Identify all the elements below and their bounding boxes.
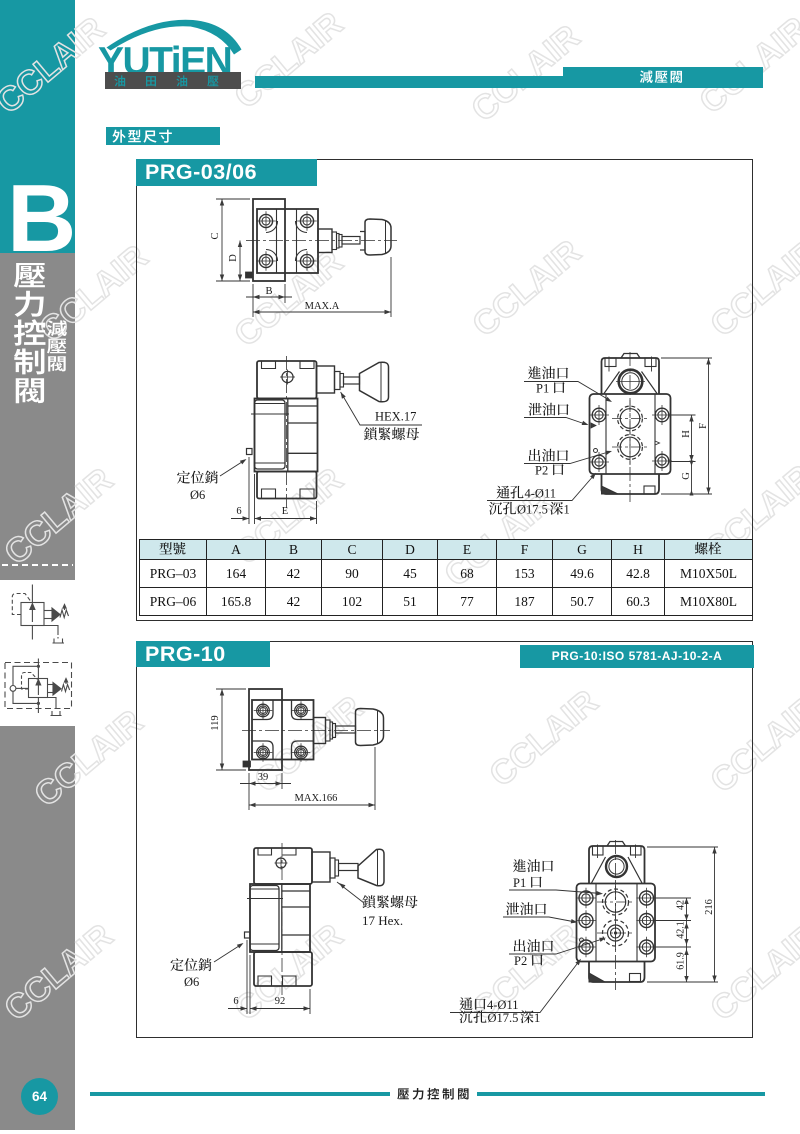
svg-text:F: F bbox=[698, 423, 709, 429]
svg-text:G: G bbox=[681, 472, 692, 480]
svg-text:D: D bbox=[228, 254, 239, 262]
svg-text:42: 42 bbox=[676, 900, 687, 910]
svg-text:MAX.166: MAX.166 bbox=[295, 793, 338, 804]
svg-text:119: 119 bbox=[210, 715, 221, 730]
svg-text:6: 6 bbox=[233, 996, 238, 1007]
svg-text:6: 6 bbox=[236, 506, 241, 517]
svg-text:4-Ø11: 4-Ø11 bbox=[525, 487, 556, 501]
svg-text:P2: P2 bbox=[535, 464, 548, 478]
svg-text:Ø17.5: Ø17.5 bbox=[488, 1011, 519, 1025]
svg-text:17 Hex.: 17 Hex. bbox=[362, 913, 403, 928]
svg-text:P1: P1 bbox=[513, 876, 526, 890]
svg-text:1: 1 bbox=[564, 503, 570, 517]
svg-text:Ø6: Ø6 bbox=[190, 488, 205, 502]
svg-text:39: 39 bbox=[258, 772, 269, 783]
svg-text:Ø6: Ø6 bbox=[184, 975, 199, 989]
svg-text:92: 92 bbox=[275, 996, 286, 1007]
svg-text:216: 216 bbox=[704, 899, 715, 915]
svg-text:P2: P2 bbox=[514, 954, 527, 968]
svg-text:H: H bbox=[681, 430, 692, 438]
svg-text:HEX.17: HEX.17 bbox=[375, 410, 416, 424]
svg-text:C: C bbox=[210, 232, 221, 239]
svg-text:B: B bbox=[265, 286, 272, 297]
svg-text:Ø17.5: Ø17.5 bbox=[517, 503, 548, 517]
svg-text:1: 1 bbox=[534, 1011, 540, 1025]
svg-text:42.1: 42.1 bbox=[676, 921, 687, 939]
svg-text:MAX.A: MAX.A bbox=[305, 301, 340, 312]
svg-text:E: E bbox=[282, 506, 288, 517]
svg-text:P1: P1 bbox=[536, 382, 549, 396]
svg-text:4-Ø11: 4-Ø11 bbox=[487, 998, 518, 1012]
svg-text:61.9: 61.9 bbox=[676, 952, 687, 970]
